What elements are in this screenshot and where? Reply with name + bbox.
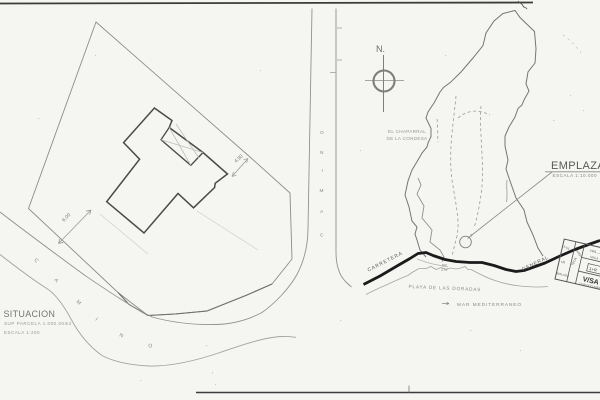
svg-text:O: O (320, 130, 324, 136)
svg-text:270: 270 (441, 268, 447, 272)
svg-text:EMPLAZAM: EMPLAZAM (551, 160, 600, 172)
svg-text:N: N (320, 150, 324, 156)
svg-text:ESCALA 1:200: ESCALA 1:200 (4, 330, 40, 335)
svg-text:MAR MEDITERRANEO: MAR MEDITERRANEO (457, 302, 522, 308)
svg-text:EL CHAPARRAL: EL CHAPARRAL (388, 129, 426, 134)
svg-text:DE LA CONDESA: DE LA CONDESA (387, 136, 429, 141)
svg-text:ESCALA 1:10.000: ESCALA 1:10.000 (553, 173, 598, 178)
svg-text:SITUACION: SITUACION (4, 309, 56, 319)
svg-text:M: M (320, 188, 324, 194)
svg-text:N.: N. (376, 44, 385, 54)
svg-text:I: I (322, 168, 323, 174)
svg-text:SUP PARCELA 1.000.00m2: SUP PARCELA 1.000.00m2 (4, 321, 72, 326)
svg-text:C: C (320, 233, 324, 239)
